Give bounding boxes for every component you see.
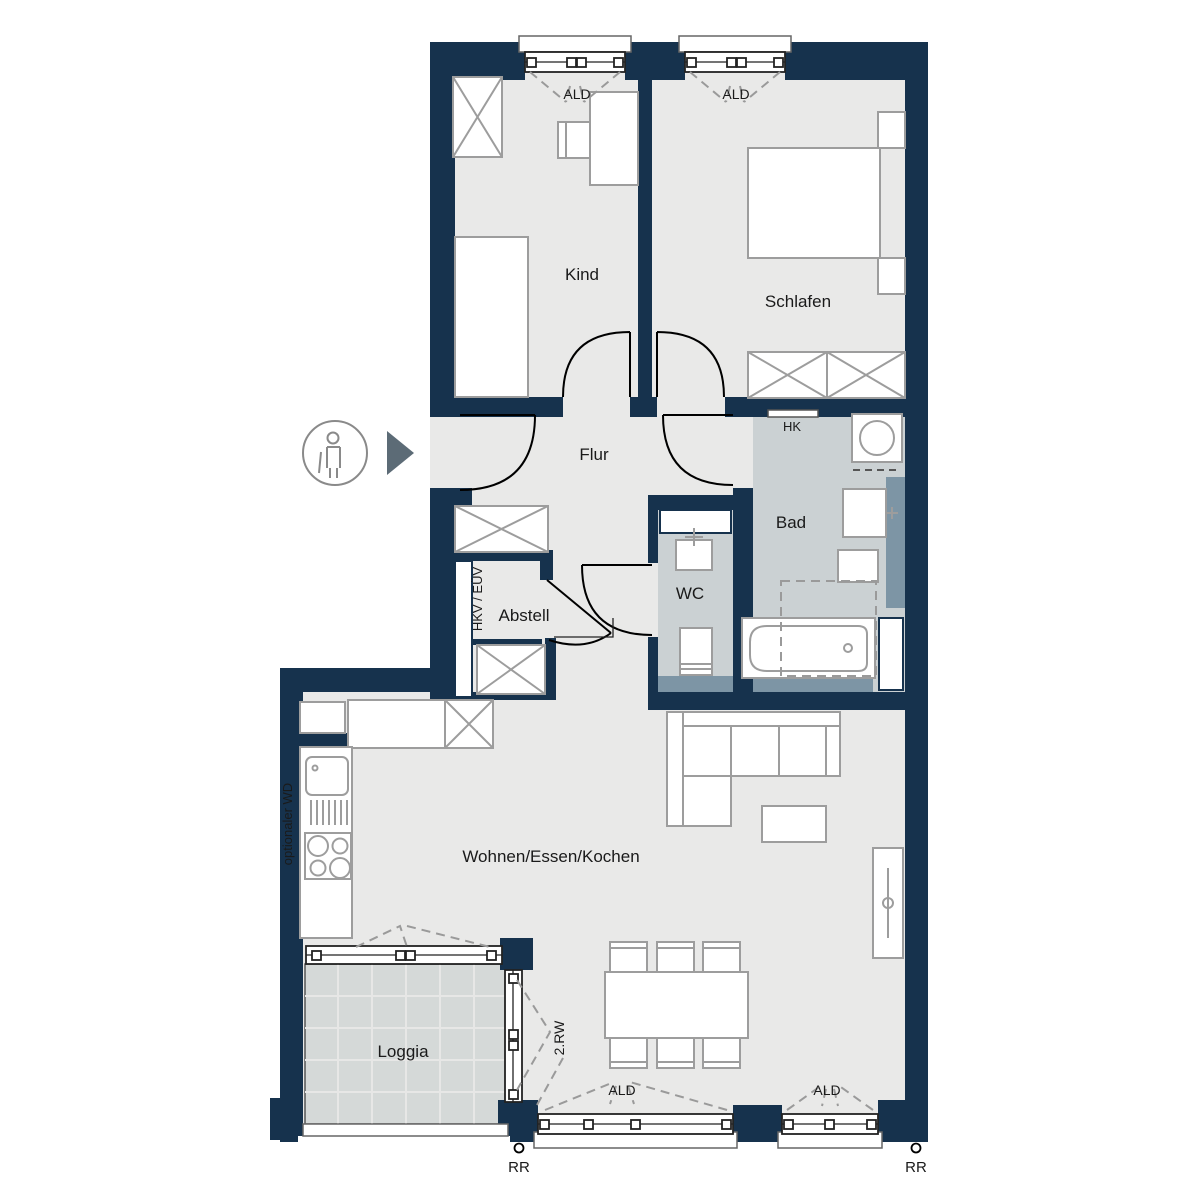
room-label-loggia: Loggia: [377, 1042, 429, 1061]
loggia-door-window: [306, 946, 502, 964]
room-label-wc: WC: [676, 584, 704, 603]
kind-wardrobe: [453, 77, 502, 157]
loggia-outside: [298, 1136, 510, 1148]
nightstand: [878, 258, 905, 294]
entrance-person-icon: [303, 421, 367, 485]
ald-label: ALD: [563, 86, 590, 102]
schlafen-bed: [748, 148, 880, 258]
rr-label: RR: [905, 1159, 927, 1176]
wc-toilet: [680, 628, 712, 675]
room-label-kind: Kind: [565, 265, 599, 284]
kitchen-sink: [306, 757, 348, 795]
nightstand: [878, 112, 905, 148]
schlafen-wardrobe: [748, 352, 905, 398]
room-label-wohnen: Wohnen/Essen/Kochen: [462, 847, 639, 866]
kind-desk: [590, 92, 638, 185]
rr-label: RR: [508, 1159, 530, 1176]
entrance-arrow-icon: [387, 431, 414, 475]
kitchen-drainer: [311, 800, 347, 825]
bad-cabinet: [838, 550, 878, 582]
coffee-table: [762, 806, 826, 842]
hkv-euv-label: HKV / EÜV: [470, 567, 485, 632]
wc-niche: [660, 510, 731, 533]
room-label-flur: Flur: [579, 445, 609, 464]
loggia-railing: [303, 1124, 508, 1136]
ald-label: ALD: [608, 1082, 635, 1098]
bad-niche: [879, 618, 903, 690]
hk-label: HK: [783, 419, 801, 434]
floorplan-canvas: Kind Schlafen Flur Bad WC Abstell Wohnen…: [0, 0, 1200, 1200]
rr-marker-left: [515, 1144, 524, 1153]
bathtub: [742, 618, 875, 678]
washing-machine: [852, 414, 902, 462]
loggia-side-window: [505, 970, 522, 1102]
room-label-bad: Bad: [776, 513, 806, 532]
window-top-schlafen: [679, 36, 791, 72]
living-radiator: [873, 848, 903, 958]
ald-label: ALD: [722, 86, 749, 102]
bad-radiator-hk: [768, 410, 818, 417]
flur-wardrobe: [455, 506, 548, 552]
dining-table: [605, 972, 748, 1038]
abstell-cabinet: [477, 645, 545, 694]
rr-marker-right: [912, 1144, 921, 1153]
room-label-schlafen: Schlafen: [765, 292, 831, 311]
kind-chair: [558, 122, 590, 158]
ald-label: ALD: [813, 1082, 840, 1098]
optional-wd-label: optionaler WD: [280, 783, 295, 865]
room-label-abstell: Abstell: [498, 606, 549, 625]
window-bottom-right: [778, 1114, 882, 1148]
second-escape-label: 2.RW: [551, 1020, 567, 1056]
window-top-kind: [519, 36, 631, 72]
kind-bed: [455, 237, 528, 397]
window-bottom-left: [534, 1114, 737, 1148]
